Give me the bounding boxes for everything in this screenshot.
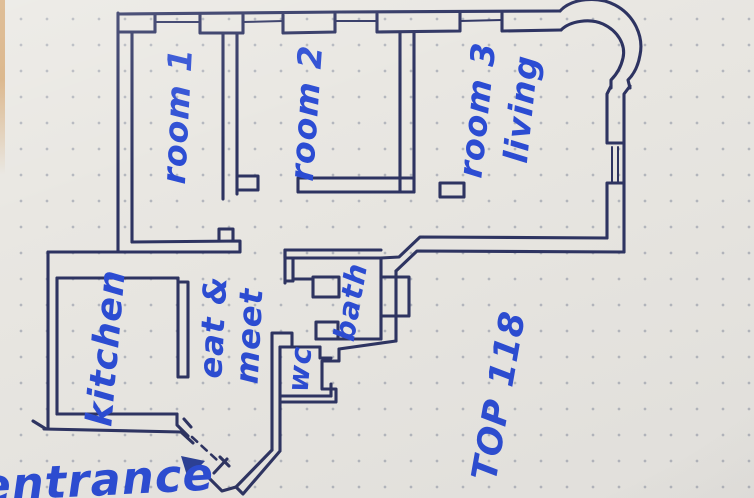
window-line [460, 20, 502, 21]
divider-room2-room3 [400, 33, 414, 192]
kitchen-eat-divider [178, 278, 188, 377]
label-wc: wc [284, 345, 317, 393]
room1-door-stub [237, 176, 258, 190]
bath-door-niche [381, 271, 409, 341]
room3-door-post [440, 183, 464, 197]
window-line [612, 147, 618, 182]
entrance-diagonal-wall [236, 450, 280, 494]
window-line [243, 21, 283, 22]
divider-room1-room2 [223, 33, 237, 199]
left-wall [118, 13, 132, 252]
top-wall [118, 11, 561, 33]
eat-meet-right-wall [272, 347, 280, 450]
window-pier [502, 13, 561, 31]
floorplan-photo: room 1 room 2 room 3 living kitchen eat … [0, 0, 754, 498]
right-wall [607, 86, 630, 252]
shaft-upper [293, 277, 339, 297]
notepad-edge [0, 0, 5, 175]
label-entrance: entrance [0, 451, 215, 498]
door-post-bump [219, 229, 233, 241]
window-pier [377, 13, 460, 32]
bay-inner-arc [561, 21, 624, 88]
label-room-2: room 2 [285, 44, 327, 182]
label-room-1: room 1 [157, 47, 197, 185]
label-living: living [499, 53, 543, 164]
bay-outer-arc [560, 0, 641, 88]
bay-window [560, 0, 641, 88]
window-pier [283, 14, 335, 33]
window-pier [200, 15, 243, 33]
top-wall-outer-line [118, 11, 560, 14]
label-eat: eat & [194, 275, 231, 379]
room-divider-walls [223, 33, 464, 199]
window-pier [118, 14, 155, 32]
hall-south-wall [48, 229, 240, 252]
label-meet: meet [231, 287, 268, 385]
room3-bottom-wall [381, 237, 624, 271]
